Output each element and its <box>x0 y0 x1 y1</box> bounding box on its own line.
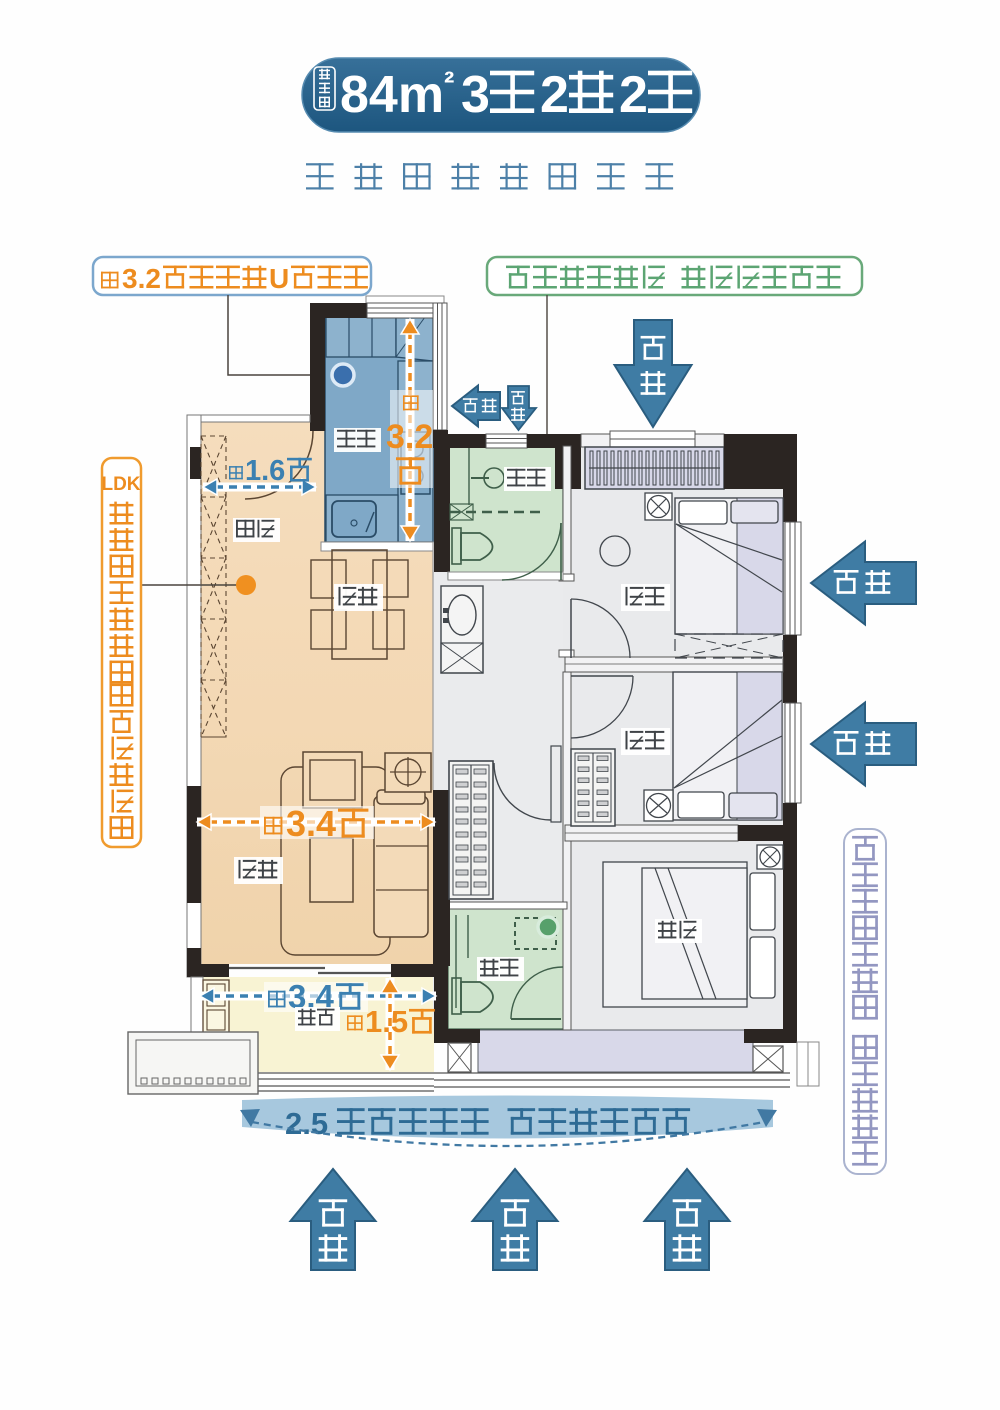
svg-text:3.2: 3.2 <box>386 418 433 456</box>
svg-text:1.6: 1.6 <box>245 455 285 487</box>
svg-text:3: 3 <box>461 66 490 124</box>
svg-text:LDK: LDK <box>101 474 140 495</box>
svg-text:3.2: 3.2 <box>122 263 161 294</box>
svg-text:1.5: 1.5 <box>365 1004 408 1039</box>
svg-text:2: 2 <box>619 66 648 124</box>
svg-text:3.4: 3.4 <box>286 803 336 844</box>
svg-text:84m: 84m <box>340 66 444 124</box>
svg-text:²: ² <box>444 65 454 100</box>
svg-text:2: 2 <box>540 66 569 124</box>
svg-text:2.5: 2.5 <box>285 1106 328 1141</box>
svg-text:U: U <box>269 263 289 294</box>
